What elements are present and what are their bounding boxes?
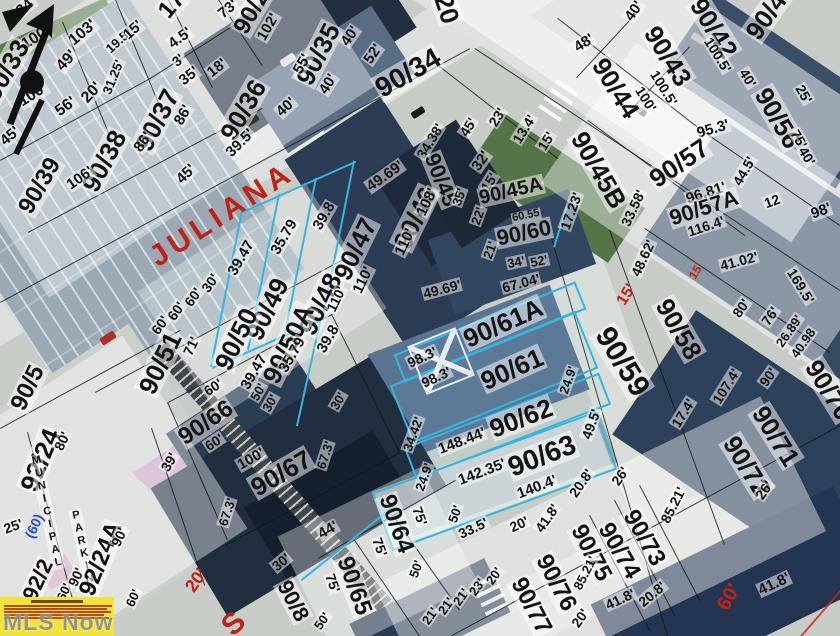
north-arrow-icon: [0, 2, 80, 177]
disclaimer-text-line: [31, 600, 82, 603]
mls-watermark: MLS Now: [3, 609, 114, 636]
dimension-label: 34': [505, 254, 527, 271]
disclaimer-box: MLS Now: [0, 597, 114, 636]
map-canvas: 34'1773'90/2102'20100'103'19.515'4.5'3'3…: [0, 0, 840, 636]
dimension-label: 52': [528, 253, 550, 270]
car: [410, 105, 426, 118]
disclaimer-text-line: [4, 605, 112, 607]
map-annotation-red: S: [216, 606, 253, 636]
